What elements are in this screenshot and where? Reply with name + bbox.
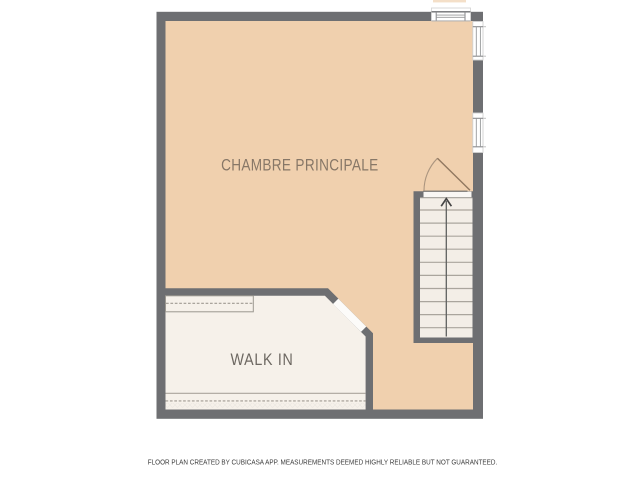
svg-text:WALK IN: WALK IN <box>231 351 294 369</box>
svg-text:CHAMBRE PRINCIPALE: CHAMBRE PRINCIPALE <box>221 156 378 175</box>
svg-text:FLOOR PLAN CREATED BY CUBICASA: FLOOR PLAN CREATED BY CUBICASA APP. MEAS… <box>148 459 498 466</box>
